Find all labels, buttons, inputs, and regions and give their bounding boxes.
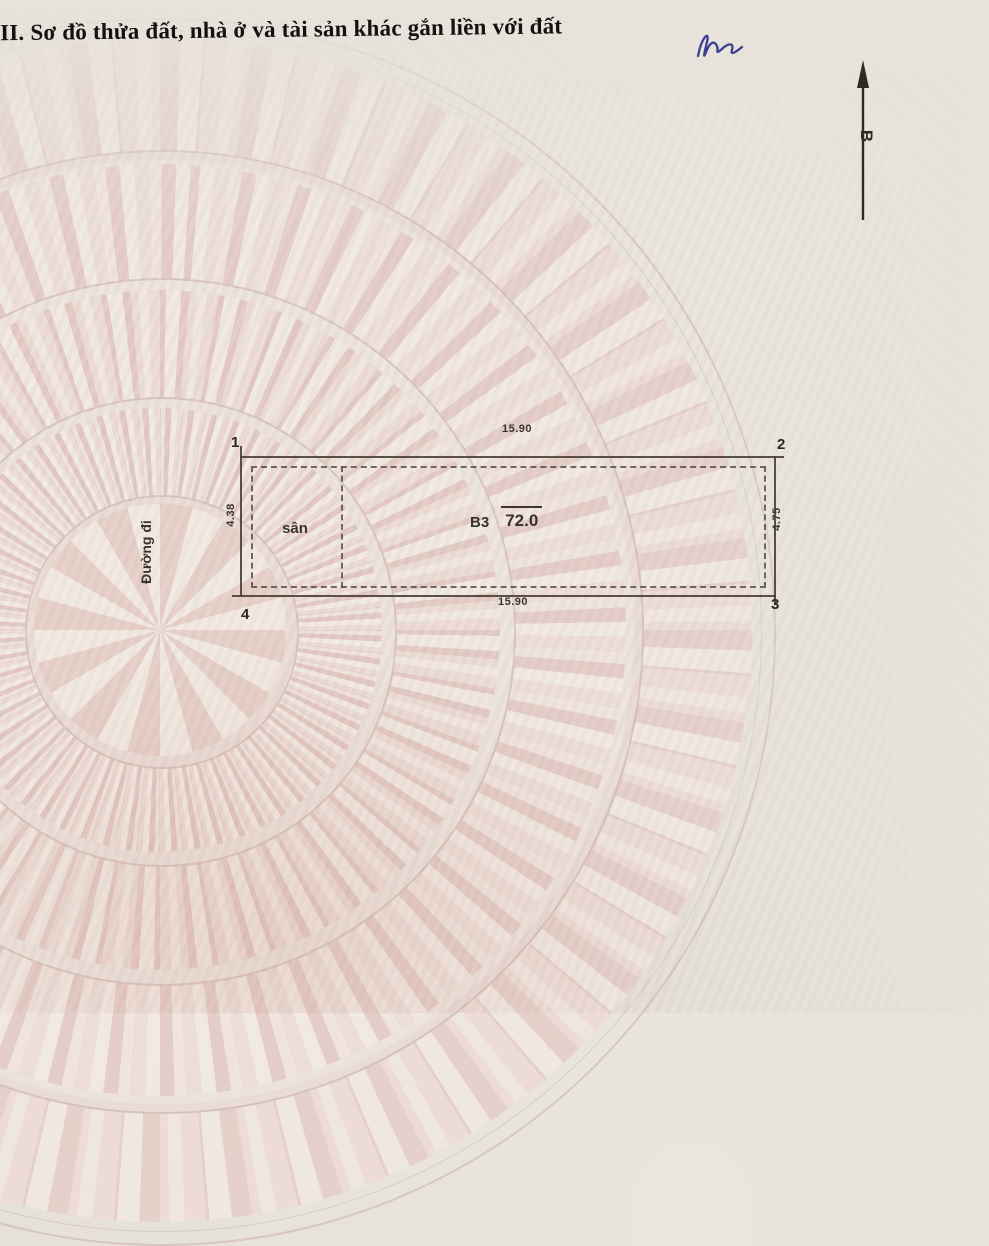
parcel-annotation: B3 72.0: [470, 506, 542, 531]
corner-tick-4: [232, 595, 242, 597]
north-arrow: B: [845, 58, 881, 228]
parcel-area: 72.0: [501, 506, 542, 531]
corner-label-2: 2: [777, 436, 785, 453]
north-arrow-head: [857, 60, 869, 88]
dimension-left: 4.38: [225, 495, 237, 535]
scanned-certificate-page: { "header": { "section_title": "III. Sơ …: [0, 0, 989, 1013]
dimension-bottom: 15.90: [483, 596, 543, 608]
corner-label-1: 1: [231, 434, 239, 451]
north-label: B: [857, 130, 876, 142]
yard-label: sân: [260, 520, 330, 537]
dimension-right: 4.75: [771, 499, 783, 539]
plot-outline: sân B3 72.0: [240, 456, 776, 597]
parcel-label: B3: [470, 514, 489, 531]
yard-divider-line: [341, 466, 343, 588]
corner-tick-1: [240, 446, 242, 458]
corner-tick-2: [774, 456, 784, 458]
road-label: Đường đi: [138, 506, 156, 598]
dimension-top: 15.90: [487, 423, 547, 435]
corner-label-4: 4: [241, 606, 249, 623]
corner-label-3: 3: [771, 596, 779, 613]
handwritten-signature: [690, 22, 760, 70]
